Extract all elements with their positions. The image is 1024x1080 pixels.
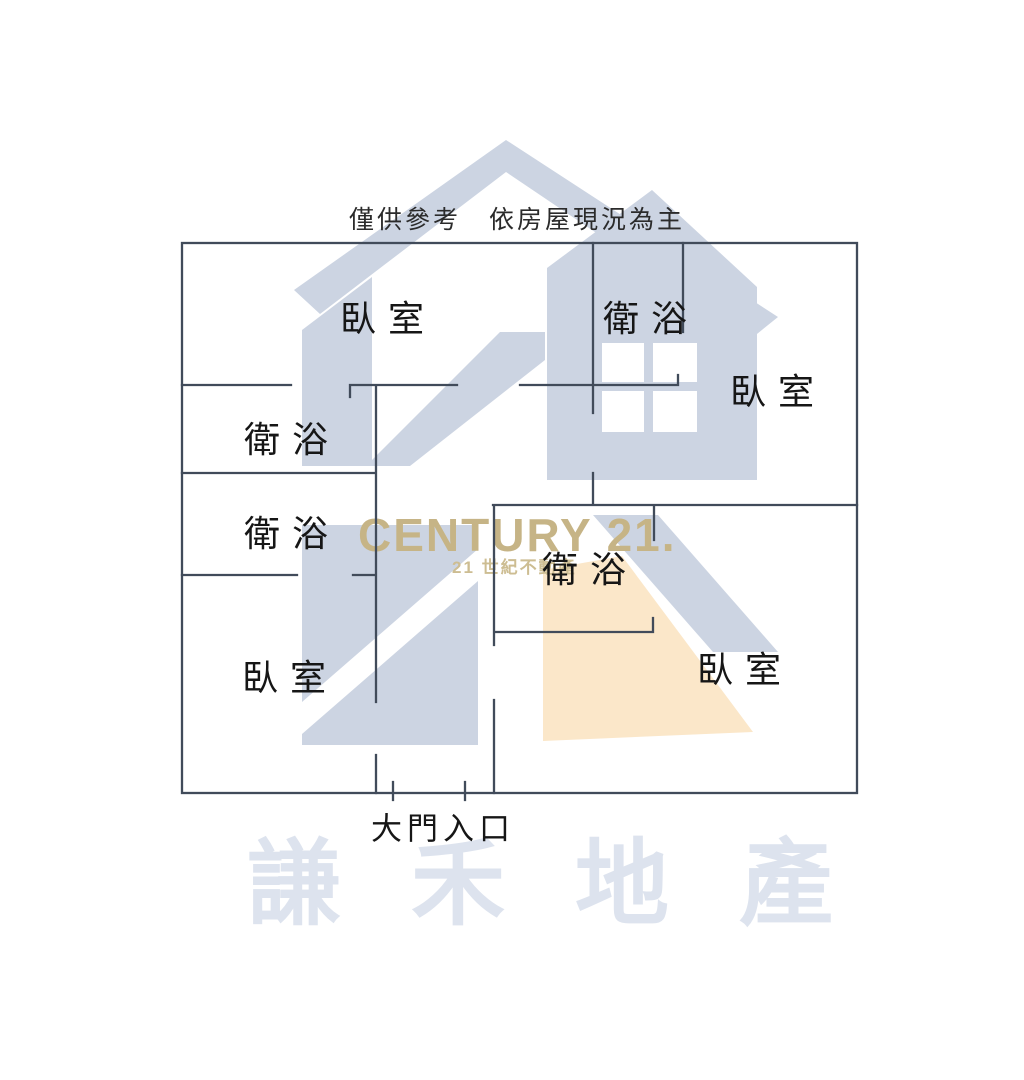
- entrance-label: 大門入口: [371, 804, 515, 849]
- room-label-bedroom-bottom-left: 臥室: [242, 649, 338, 701]
- floorplan-page: 謙禾地產 CENTURY 21. 21 世紀不動產 僅供參考 依房屋現況為主 臥…: [0, 0, 1024, 1080]
- room-label-bedroom-top-left: 臥室: [340, 290, 436, 342]
- disclaimer-title: 僅供參考 依房屋現況為主: [349, 200, 685, 236]
- room-label-bath-center: 衛浴: [542, 541, 638, 593]
- room-label-bath-left-upper: 衛浴: [244, 411, 340, 463]
- room-label-bedroom-top-right: 臥室: [730, 363, 826, 415]
- entrance-door-ticks: [393, 782, 465, 800]
- room-label-bath-top: 衛浴: [603, 290, 699, 342]
- floorplan-walls: [0, 0, 1024, 1080]
- room-label-bedroom-bottom-right: 臥室: [697, 641, 793, 693]
- room-label-bath-left-lower: 衛浴: [244, 505, 340, 557]
